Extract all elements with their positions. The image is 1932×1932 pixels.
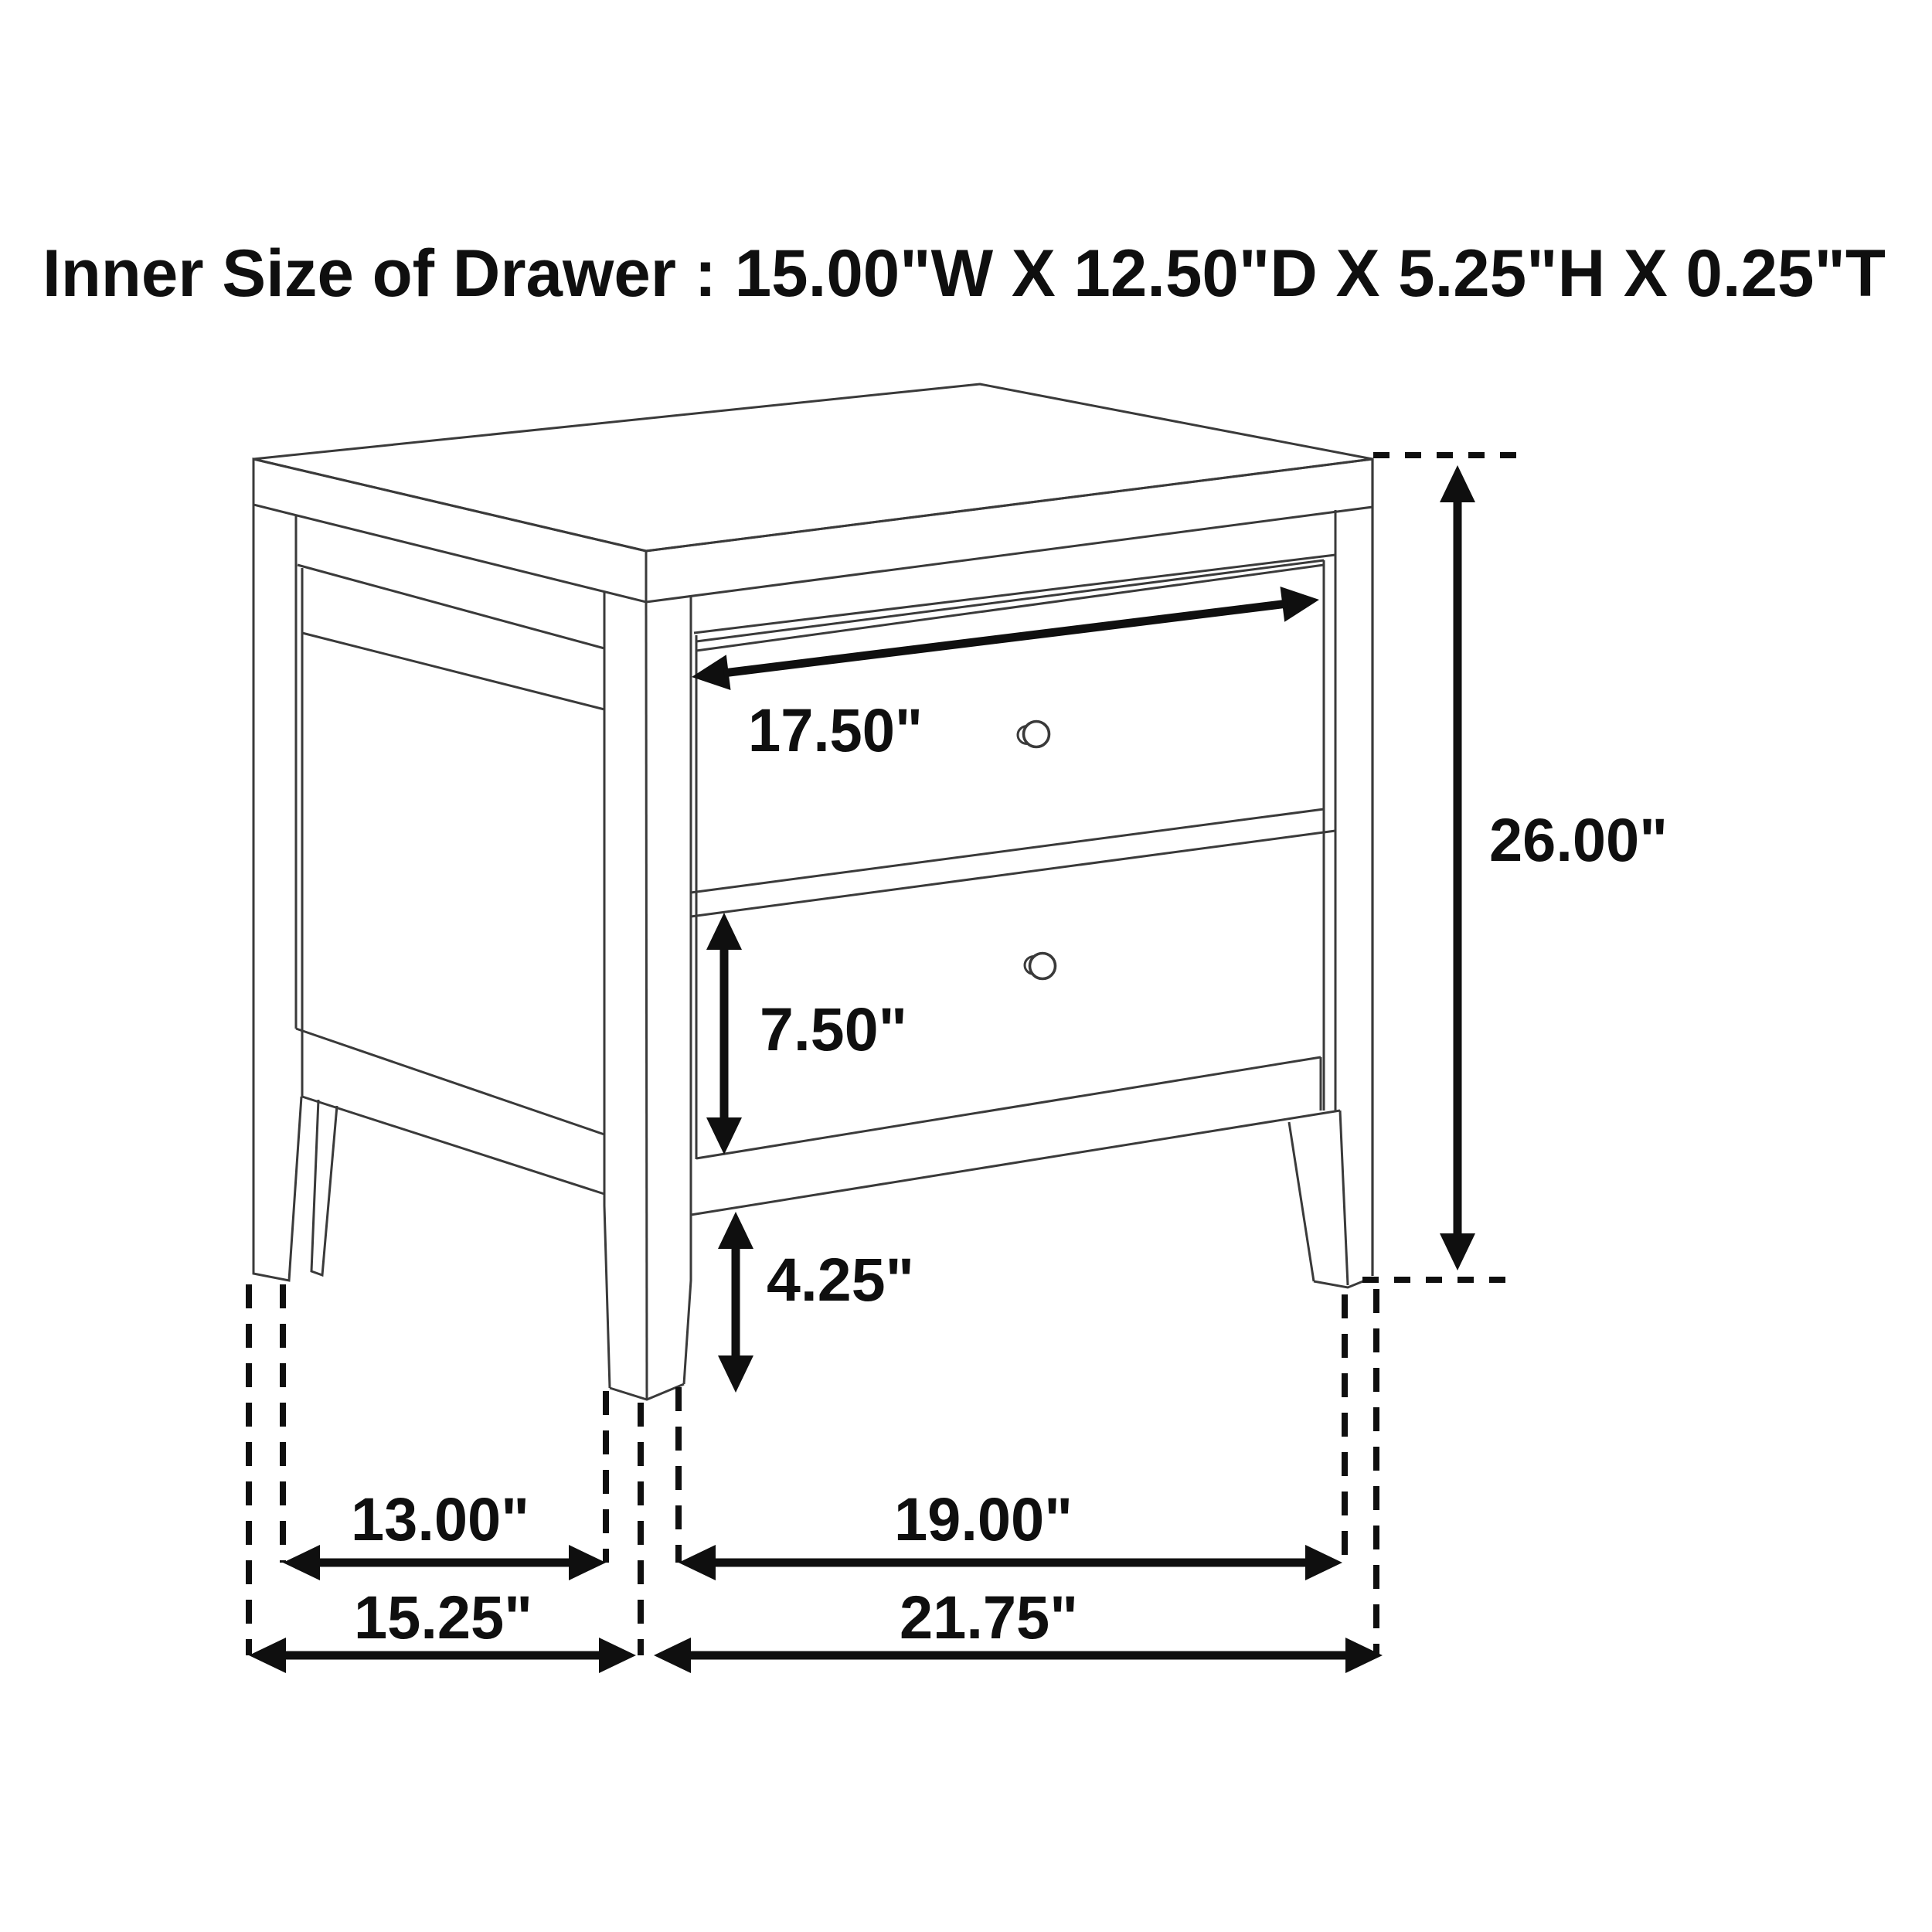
svg-text:19.00": 19.00"	[894, 1485, 1073, 1553]
svg-text:Inner Size of Drawer : 15.00"W: Inner Size of Drawer : 15.00"W X 12.50"D…	[43, 236, 1886, 311]
svg-text:21.75": 21.75"	[900, 1583, 1078, 1651]
svg-text:4.25": 4.25"	[767, 1245, 914, 1314]
svg-text:17.50": 17.50"	[748, 696, 923, 764]
svg-text:15.25": 15.25"	[354, 1583, 532, 1651]
svg-text:13.00": 13.00"	[351, 1485, 529, 1553]
svg-text:7.50": 7.50"	[760, 995, 907, 1063]
svg-text:26.00": 26.00"	[1489, 805, 1668, 874]
